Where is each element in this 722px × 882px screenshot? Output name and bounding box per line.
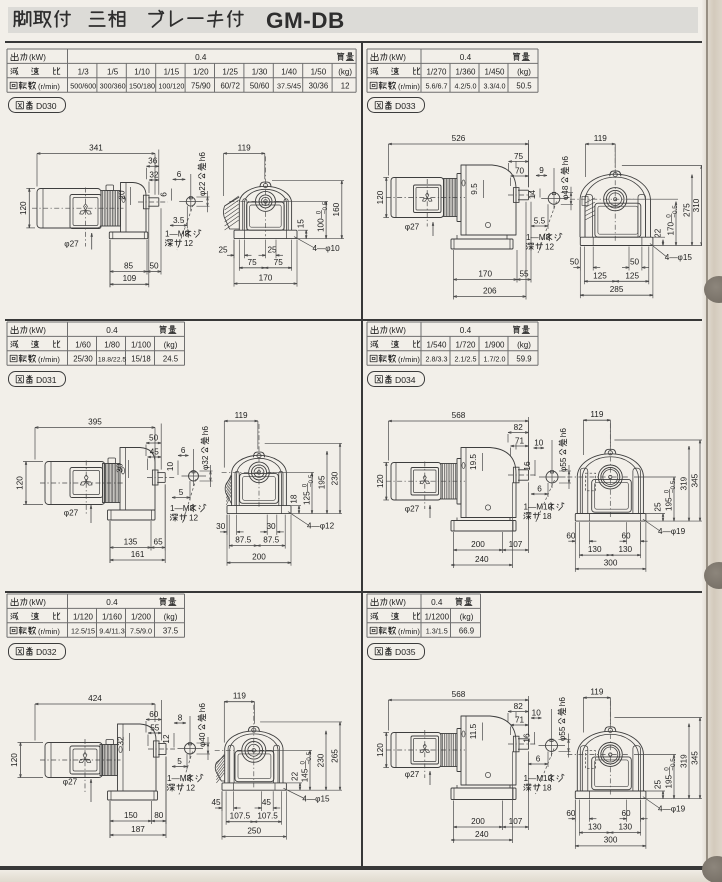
svg-text:φ27: φ27 xyxy=(405,505,420,514)
svg-text:−0.5: −0.5 xyxy=(322,201,329,214)
svg-text:25: 25 xyxy=(267,246,277,255)
svg-text:55: 55 xyxy=(150,723,160,732)
svg-text:18: 18 xyxy=(543,784,553,793)
svg-text:120: 120 xyxy=(376,743,385,757)
svg-text:130: 130 xyxy=(618,545,632,554)
svg-text:16: 16 xyxy=(523,733,532,743)
svg-text:345: 345 xyxy=(690,751,699,765)
svg-text:71: 71 xyxy=(515,436,525,445)
svg-text:230: 230 xyxy=(330,471,339,485)
svg-text:424: 424 xyxy=(88,694,102,703)
svg-text:395: 395 xyxy=(88,418,102,427)
svg-text:119: 119 xyxy=(235,411,248,420)
svg-text:φ32: φ32 xyxy=(201,455,210,470)
svg-text:60: 60 xyxy=(149,710,159,719)
svg-text:310: 310 xyxy=(692,198,701,212)
svg-text:h6: h6 xyxy=(201,426,210,436)
svg-text:−0.5: −0.5 xyxy=(670,758,677,771)
svg-text:4—φ15: 4—φ15 xyxy=(302,795,330,804)
svg-text:200: 200 xyxy=(471,817,485,826)
svg-text:170: 170 xyxy=(478,269,492,278)
svg-text:22: 22 xyxy=(653,228,662,238)
svg-text:1—M8: 1—M8 xyxy=(165,230,190,239)
svg-text:206: 206 xyxy=(483,286,497,295)
svg-text:12: 12 xyxy=(186,784,196,793)
svg-text:6: 6 xyxy=(537,484,542,493)
svg-text:50: 50 xyxy=(630,258,640,267)
svg-text:1—M8: 1—M8 xyxy=(167,774,192,783)
svg-text:5: 5 xyxy=(177,757,182,766)
svg-text:4—φ19: 4—φ19 xyxy=(658,805,686,814)
svg-text:109: 109 xyxy=(123,274,137,283)
svg-text:h6: h6 xyxy=(561,156,570,166)
svg-text:300: 300 xyxy=(604,559,618,568)
svg-text:45: 45 xyxy=(150,447,160,456)
svg-text:130: 130 xyxy=(618,823,632,832)
svg-text:9: 9 xyxy=(539,166,544,175)
svg-text:φ27: φ27 xyxy=(63,778,78,787)
svg-text:−0.5: −0.5 xyxy=(308,474,315,487)
svg-text:6: 6 xyxy=(177,170,182,179)
svg-text:18: 18 xyxy=(289,494,298,504)
svg-text:1—M10: 1—M10 xyxy=(524,774,553,783)
svg-text:25: 25 xyxy=(218,246,228,255)
svg-text:22: 22 xyxy=(290,771,299,781)
svg-text:119: 119 xyxy=(590,410,603,419)
svg-text:φ27: φ27 xyxy=(405,223,420,232)
svg-text:50: 50 xyxy=(149,433,159,442)
svg-text:345: 345 xyxy=(690,473,699,487)
svg-text:150: 150 xyxy=(124,811,138,820)
svg-text:119: 119 xyxy=(238,143,251,152)
svg-text:12: 12 xyxy=(545,243,555,252)
svg-text:45: 45 xyxy=(262,798,272,807)
svg-text:200: 200 xyxy=(471,540,485,549)
svg-text:135: 135 xyxy=(124,537,138,546)
svg-text:125: 125 xyxy=(625,271,639,280)
svg-text:341: 341 xyxy=(89,144,103,153)
svg-text:−0.5: −0.5 xyxy=(306,751,313,764)
svg-text:55: 55 xyxy=(519,269,529,278)
svg-text:230: 230 xyxy=(316,753,325,767)
svg-text:30: 30 xyxy=(266,522,276,531)
svg-text:φ40: φ40 xyxy=(198,732,207,747)
svg-text:−0.5: −0.5 xyxy=(672,205,679,218)
svg-text:119: 119 xyxy=(590,688,603,697)
svg-text:8: 8 xyxy=(178,713,183,722)
svg-text:32: 32 xyxy=(149,170,159,179)
svg-text:319: 319 xyxy=(679,754,688,768)
svg-text:107: 107 xyxy=(509,817,523,826)
svg-text:526: 526 xyxy=(452,134,466,143)
svg-text:200: 200 xyxy=(252,553,266,562)
svg-text:120: 120 xyxy=(10,753,19,767)
svg-text:568: 568 xyxy=(452,411,466,420)
svg-text:75: 75 xyxy=(248,258,258,267)
svg-text:32: 32 xyxy=(117,736,126,746)
svg-text:12: 12 xyxy=(184,239,194,248)
svg-text:10: 10 xyxy=(532,708,542,717)
svg-text:−0.5: −0.5 xyxy=(670,480,677,493)
svg-text:130: 130 xyxy=(588,545,602,554)
svg-text:87.5: 87.5 xyxy=(263,536,279,545)
svg-text:187: 187 xyxy=(131,825,145,834)
svg-text:30: 30 xyxy=(216,522,226,531)
svg-text:4—φ15: 4—φ15 xyxy=(665,253,693,262)
svg-text:30: 30 xyxy=(116,463,125,473)
svg-text:285: 285 xyxy=(610,285,624,294)
svg-text:161: 161 xyxy=(131,550,145,559)
svg-text:1—M10: 1—M10 xyxy=(524,503,553,512)
svg-text:107.5: 107.5 xyxy=(257,812,278,821)
svg-text:12: 12 xyxy=(189,514,199,523)
svg-text:14: 14 xyxy=(528,190,537,200)
svg-text:50: 50 xyxy=(149,261,159,270)
svg-text:4—φ19: 4—φ19 xyxy=(658,527,686,536)
svg-text:107: 107 xyxy=(509,540,523,549)
svg-text:19.5: 19.5 xyxy=(469,454,478,470)
svg-text:240: 240 xyxy=(475,830,489,839)
svg-text:65: 65 xyxy=(154,537,164,546)
svg-text:25: 25 xyxy=(653,780,662,790)
svg-text:36: 36 xyxy=(148,157,158,166)
svg-text:75: 75 xyxy=(274,258,284,267)
svg-text:4—φ10: 4—φ10 xyxy=(313,244,341,253)
svg-text:9.5: 9.5 xyxy=(470,183,479,195)
svg-text:25: 25 xyxy=(653,502,662,512)
svg-text:h6: h6 xyxy=(198,703,207,713)
svg-text:240: 240 xyxy=(475,555,489,564)
svg-text:120: 120 xyxy=(19,201,28,215)
svg-text:82: 82 xyxy=(514,423,524,432)
svg-text:φ55: φ55 xyxy=(558,726,567,741)
svg-text:20: 20 xyxy=(118,190,127,200)
svg-text:12: 12 xyxy=(162,734,171,744)
svg-text:18: 18 xyxy=(543,512,553,521)
svg-text:15: 15 xyxy=(297,219,306,229)
svg-text:45: 45 xyxy=(211,798,221,807)
svg-text:1—M8: 1—M8 xyxy=(526,233,551,242)
svg-text:10: 10 xyxy=(166,462,175,472)
svg-text:h6: h6 xyxy=(559,428,568,438)
svg-text:80: 80 xyxy=(154,811,164,820)
svg-text:3.5: 3.5 xyxy=(173,216,185,225)
svg-text:119: 119 xyxy=(233,692,246,701)
svg-text:195: 195 xyxy=(317,475,326,489)
svg-text:120: 120 xyxy=(376,190,385,204)
svg-text:70: 70 xyxy=(515,166,525,175)
svg-text:160: 160 xyxy=(332,202,341,216)
svg-text:1—M8: 1—M8 xyxy=(170,504,195,513)
svg-text:87.5: 87.5 xyxy=(235,536,251,545)
svg-text:10: 10 xyxy=(534,438,544,447)
svg-text:130: 130 xyxy=(588,823,602,832)
svg-text:119: 119 xyxy=(594,134,607,143)
svg-text:60: 60 xyxy=(566,809,576,818)
svg-text:120: 120 xyxy=(376,474,385,488)
svg-text:h6: h6 xyxy=(198,152,207,162)
svg-text:250: 250 xyxy=(247,826,261,835)
svg-text:6: 6 xyxy=(181,446,186,455)
svg-text:6: 6 xyxy=(160,192,169,197)
svg-text:107.5: 107.5 xyxy=(230,812,251,821)
svg-text:4—φ12: 4—φ12 xyxy=(307,522,335,531)
svg-text:5.5: 5.5 xyxy=(534,216,546,225)
svg-text:125: 125 xyxy=(593,271,607,280)
svg-text:71: 71 xyxy=(515,715,525,724)
svg-text:φ27: φ27 xyxy=(64,240,79,249)
svg-text:120: 120 xyxy=(16,476,25,490)
svg-text:h6: h6 xyxy=(558,697,567,707)
svg-text:75: 75 xyxy=(514,152,524,161)
svg-text:11.5: 11.5 xyxy=(469,723,478,739)
svg-text:300: 300 xyxy=(604,836,618,845)
svg-text:170: 170 xyxy=(259,273,273,282)
svg-text:φ27: φ27 xyxy=(64,509,79,518)
svg-text:275: 275 xyxy=(682,203,691,217)
svg-text:16: 16 xyxy=(523,461,532,471)
svg-text:568: 568 xyxy=(452,690,466,699)
svg-text:5: 5 xyxy=(179,488,184,497)
svg-text:85: 85 xyxy=(124,261,134,270)
svg-text:φ55: φ55 xyxy=(559,457,568,472)
svg-text:50: 50 xyxy=(570,258,580,267)
svg-text:60: 60 xyxy=(566,531,576,540)
svg-text:φ22: φ22 xyxy=(198,181,207,196)
svg-text:6: 6 xyxy=(536,754,541,763)
svg-text:φ27: φ27 xyxy=(405,770,420,779)
svg-text:319: 319 xyxy=(679,476,688,490)
svg-text:82: 82 xyxy=(514,702,524,711)
svg-text:265: 265 xyxy=(330,749,339,763)
